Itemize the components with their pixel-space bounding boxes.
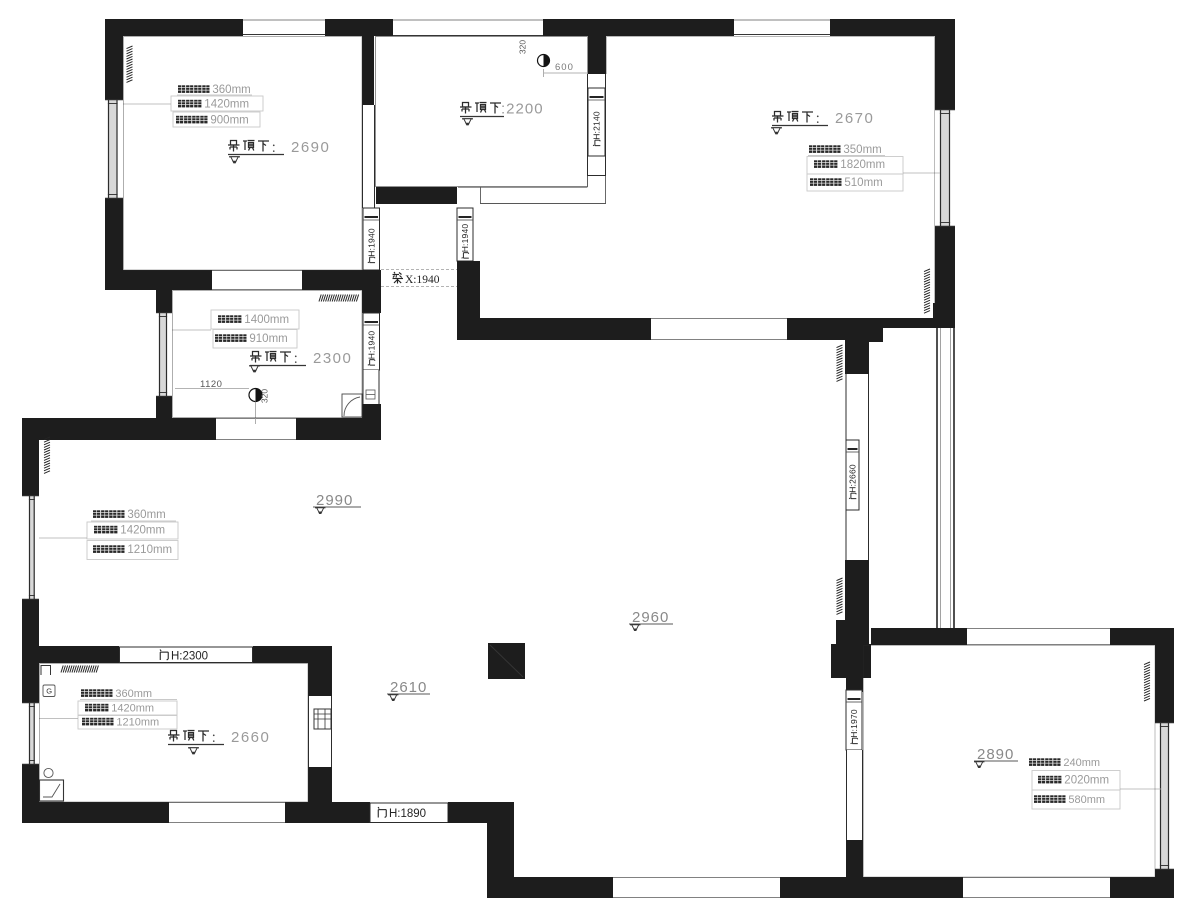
svg-text:H:1940: H:1940: [460, 224, 470, 253]
svg-text:2300: 2300: [313, 350, 352, 367]
svg-text:320: 320: [260, 389, 270, 403]
svg-text:360mm: 360mm: [127, 509, 165, 521]
svg-text:1420mm: 1420mm: [120, 525, 165, 537]
svg-text:H:2660: H:2660: [848, 464, 858, 493]
svg-text:360mm: 360mm: [212, 84, 250, 96]
svg-text:H:2140: H:2140: [592, 111, 602, 140]
svg-text:510mm: 510mm: [844, 177, 882, 189]
svg-text:H:1970: H:1970: [849, 709, 859, 738]
svg-text:：: ：: [211, 733, 222, 745]
svg-text:1420mm: 1420mm: [111, 703, 154, 715]
svg-text:600: 600: [555, 62, 574, 73]
svg-text:2670: 2670: [835, 110, 874, 127]
svg-text:350mm: 350mm: [843, 144, 881, 156]
svg-text:：: ：: [293, 354, 304, 366]
svg-text:320: 320: [518, 40, 528, 54]
svg-text:2020mm: 2020mm: [1064, 775, 1109, 787]
svg-text:360mm: 360mm: [115, 688, 152, 700]
svg-text:H:2300: H:2300: [171, 651, 208, 663]
svg-text:910mm: 910mm: [249, 333, 287, 345]
svg-text:240mm: 240mm: [1063, 757, 1100, 769]
svg-text:H:1940: H:1940: [366, 228, 376, 257]
svg-text:：: ：: [815, 114, 826, 126]
svg-text:1210mm: 1210mm: [116, 717, 159, 729]
svg-text:580mm: 580mm: [1068, 794, 1105, 806]
svg-text:H:1940: H:1940: [366, 331, 376, 360]
svg-text:1820mm: 1820mm: [840, 159, 885, 171]
svg-text:2660: 2660: [231, 729, 270, 746]
svg-text:X:1940: X:1940: [405, 274, 440, 286]
svg-text:G: G: [46, 687, 52, 696]
svg-text:：: ：: [271, 143, 282, 155]
svg-text:2690: 2690: [291, 139, 330, 156]
svg-text:1420mm: 1420mm: [204, 99, 249, 111]
svg-text:1210mm: 1210mm: [127, 544, 172, 556]
svg-text:H:1890: H:1890: [389, 808, 426, 820]
svg-text:900mm: 900mm: [210, 115, 248, 127]
svg-text:1400mm: 1400mm: [244, 314, 289, 326]
svg-text::2200: :2200: [501, 101, 544, 118]
